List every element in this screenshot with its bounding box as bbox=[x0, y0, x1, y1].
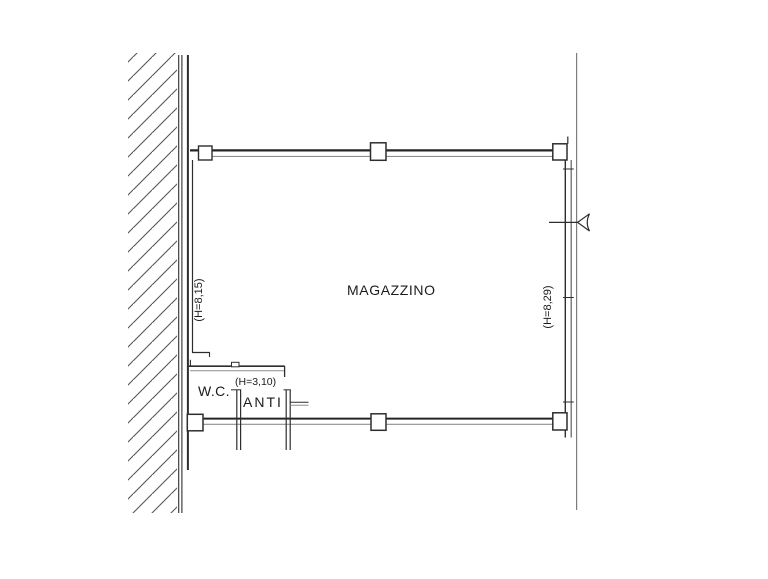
pilaster-bottom-left bbox=[187, 414, 203, 431]
height-label-right: (H=8,29) bbox=[543, 275, 559, 339]
height-label-wc-anti: (H=3,10) bbox=[235, 377, 276, 388]
room-label-magazzino: MAGAZZINO bbox=[347, 283, 436, 297]
pilaster-top-middle bbox=[371, 143, 387, 161]
pilaster-top-left bbox=[199, 146, 213, 160]
pilaster-bottom-middle bbox=[371, 414, 386, 431]
floor-plan-page: MAGAZZINO (H=8,15) (H=8,29) W.C. (H=3,10… bbox=[0, 0, 768, 579]
entrance-arrow-head bbox=[578, 214, 590, 231]
wc-top-wall-notch bbox=[232, 362, 240, 367]
top-wall bbox=[190, 137, 568, 161]
room-label-anti: ANTI bbox=[243, 395, 283, 409]
bottom-wall bbox=[187, 413, 567, 431]
room-label-wc: W.C. bbox=[198, 384, 230, 398]
entrance-arrow-icon bbox=[549, 214, 590, 231]
right-wall bbox=[563, 160, 574, 438]
height-label-left: (H=8,15) bbox=[194, 268, 210, 332]
pilaster-top-right bbox=[553, 144, 567, 160]
exterior-wall-hatch bbox=[128, 53, 177, 513]
pilaster-bottom-right bbox=[553, 413, 567, 430]
